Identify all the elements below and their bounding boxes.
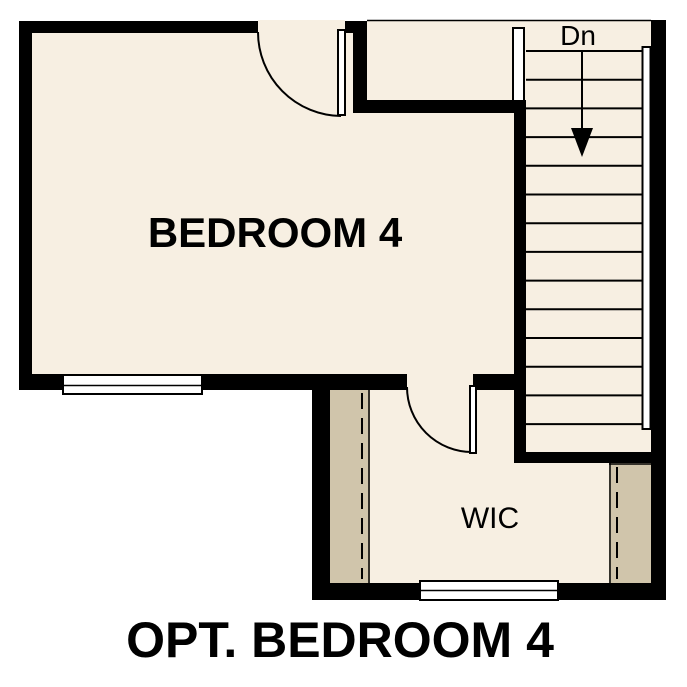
wic-door-opening <box>407 374 473 394</box>
wall-wic-left <box>312 374 330 600</box>
plan-title: OPT. BEDROOM 4 <box>126 612 554 668</box>
wic-floor <box>330 391 651 583</box>
wall-stairwell-left <box>514 100 526 463</box>
bedroom-door-opening <box>258 20 345 45</box>
stair-door-leaf <box>513 28 524 101</box>
floor-plan-canvas: BEDROOM 4 Dn WIC OPT. BEDROOM 4 <box>0 0 687 687</box>
wall-stairwell-bottom <box>514 452 666 463</box>
closet-shelf-right <box>609 463 652 583</box>
wall-top-left <box>19 21 258 33</box>
wic-window <box>420 581 558 600</box>
bedroom-door-leaf <box>338 30 345 115</box>
bedroom-label: BEDROOM 4 <box>148 209 403 256</box>
bedroom-window <box>63 375 202 394</box>
wall-hall <box>353 100 514 113</box>
closet-shelf-left <box>330 389 370 583</box>
wic-label: WIC <box>461 502 519 535</box>
stair-handrail <box>643 47 651 429</box>
wall-right <box>651 20 666 600</box>
wall-wic-top-right <box>473 374 514 390</box>
wic-door-leaf <box>470 386 476 453</box>
wall-left <box>19 21 32 390</box>
stair-direction-label: Dn <box>560 20 596 51</box>
floor-plan: BEDROOM 4 Dn WIC OPT. BEDROOM 4 <box>0 0 687 687</box>
wall-door-pier <box>353 21 367 113</box>
